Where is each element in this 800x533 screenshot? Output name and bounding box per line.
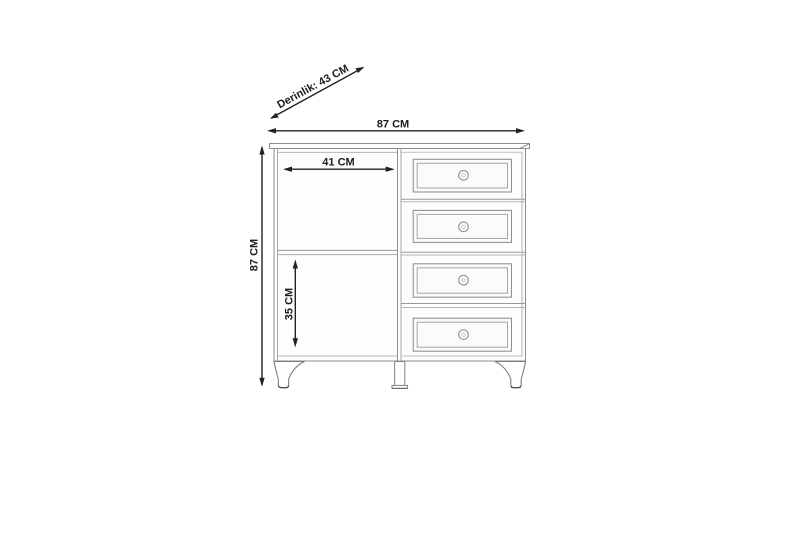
svg-text:87 CM: 87 CM <box>377 118 409 130</box>
svg-text:87 CM: 87 CM <box>249 239 261 271</box>
svg-text:35 CM: 35 CM <box>283 288 295 320</box>
svg-text:41 CM: 41 CM <box>322 157 354 169</box>
svg-text:Derinlik: 43 CM: Derinlik: 43 CM <box>275 63 350 112</box>
